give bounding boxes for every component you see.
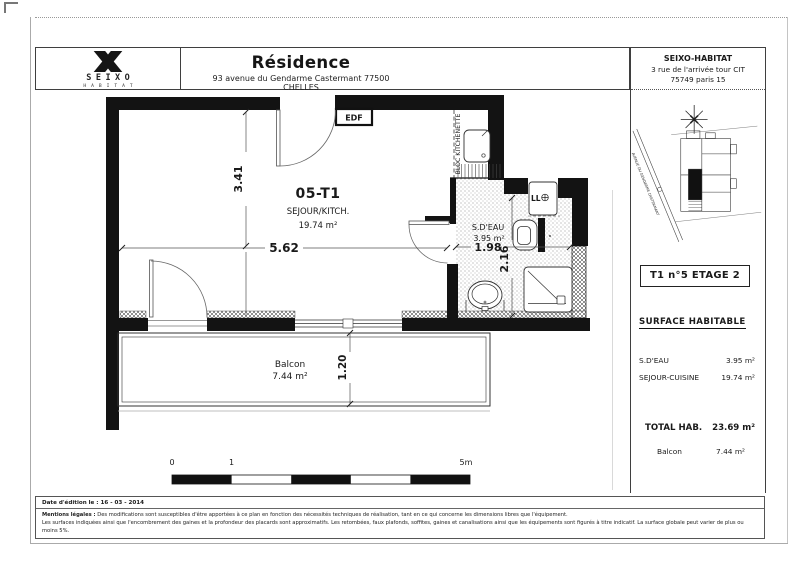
unit-id-box: T1 n°5 ETAGE 2 xyxy=(640,265,750,287)
surface-habitable-title: SURFACE HABITABLE xyxy=(639,317,746,329)
edf-meter: EDF xyxy=(336,109,372,125)
party-wall-hatched xyxy=(572,246,586,318)
dim-height-label: 3.41 xyxy=(232,165,245,192)
floor-plan: BLOC KITCHENETTE EDF LL xyxy=(100,90,600,435)
balcony-label: Balcon xyxy=(657,447,682,456)
site-plan: AVENUE DU GENDARME CASTERMANT xyxy=(631,93,765,253)
company-block: SEIXO-HABITAT 3 rue de l'arrivée tour CI… xyxy=(631,48,765,90)
sheet-bottom-border xyxy=(30,543,788,544)
scale-0: 0 xyxy=(169,458,174,467)
sheet-corner-mark xyxy=(4,2,18,13)
company-address-2: 75749 paris 15 xyxy=(631,75,765,84)
balcony-door xyxy=(150,260,208,317)
sheet-left-border xyxy=(30,17,31,544)
surface-row-label: S.D'EAU xyxy=(639,356,669,365)
legal-line-1: Des modifications sont susceptibles d'êt… xyxy=(97,512,567,518)
surface-row-value: 19.74 m² xyxy=(721,373,755,382)
bathroom-area: 3.95 m² xyxy=(473,234,504,243)
balcony-row: Balcon 7.44 m² xyxy=(657,447,745,456)
sheet-top-border xyxy=(35,17,787,18)
street-line xyxy=(633,129,683,242)
residence-title: Résidence xyxy=(196,53,406,72)
surface-row-label: SEJOUR-CUISINE xyxy=(639,373,699,382)
surface-row-sejour: SEJOUR-CUISINE 19.74 m² xyxy=(639,373,755,382)
seixo-x-icon xyxy=(91,51,125,72)
footer-block: Date d'édition le : 16 - 03 - 2014 Menti… xyxy=(35,496,765,539)
surface-row-value: 3.95 m² xyxy=(726,356,755,365)
main-room-area: 19.74 m² xyxy=(299,221,338,231)
unit-label: 05-T1 xyxy=(295,186,340,202)
balcony-plan-label: Balcon xyxy=(275,360,305,370)
compass-rose-icon xyxy=(681,105,708,134)
logo-brand-text: SEIXO xyxy=(86,73,134,83)
total-label: TOTAL HAB. xyxy=(645,423,702,433)
washing-machine-icon: LL xyxy=(528,182,560,216)
scale-1: 1 xyxy=(229,458,234,467)
dim-width-label: 5.62 xyxy=(269,241,299,255)
bathroom-door xyxy=(409,221,449,263)
dim-balcony-label: 1.20 xyxy=(337,355,349,381)
surface-row-sdeau: S.D'EAU 3.95 m² xyxy=(639,356,755,365)
legal-title: Mentions légales : xyxy=(42,512,96,518)
balcony-plan-area: 7.44 m² xyxy=(272,372,308,382)
sheet-fold-line xyxy=(612,190,613,490)
legal-line-2: Les surfaces indiquées ainsi que l'encom… xyxy=(42,519,758,535)
sheet-right-border xyxy=(787,17,788,543)
info-panel: SEIXO-HABITAT 3 rue de l'arrivée tour CI… xyxy=(630,47,766,493)
title-block-header: SEIXO HABITAT Résidence 93 avenue du Gen… xyxy=(35,47,630,90)
main-room-label: SEJOUR/KITCH. xyxy=(287,207,350,217)
balcony-value: 7.44 m² xyxy=(716,447,745,456)
edf-label: EDF xyxy=(345,114,363,123)
logo-word-text: HABITAT xyxy=(83,84,137,89)
total-hab-row: TOTAL HAB. 23.69 m² xyxy=(645,423,755,433)
company-name: SEIXO-HABITAT xyxy=(631,54,765,63)
washer-label: LL xyxy=(531,194,541,203)
entrance-door xyxy=(277,110,336,166)
scale-bar: 0 1 5m xyxy=(165,455,475,487)
wall-insulation-hatch xyxy=(120,311,586,318)
dim-bath-height-label: 2.16 xyxy=(498,245,511,272)
legal-mentions: Mentions légales : Des modifications son… xyxy=(36,509,764,538)
company-address-1: 3 rue de l'arrivée tour CIT xyxy=(631,65,765,74)
bathroom-label: S.D'EAU xyxy=(472,223,505,232)
highlighted-unit xyxy=(688,169,701,200)
kitchen-sink-icon xyxy=(464,130,490,162)
seixo-logo: SEIXO HABITAT xyxy=(36,48,181,89)
total-value: 23.69 m² xyxy=(712,423,755,433)
site-building-footprint xyxy=(671,126,761,222)
scale-5m: 5m xyxy=(460,458,473,467)
edition-date: Date d'édition le : 16 - 03 - 2014 xyxy=(36,497,764,509)
plan-sheet: SEIXO HABITAT Résidence 93 avenue du Gen… xyxy=(0,0,799,565)
residence-title-cell: Résidence 93 avenue du Gendarme Casterma… xyxy=(181,48,629,89)
kitchenette-label: BLOC KITCHENETTE xyxy=(455,114,462,175)
shower-icon xyxy=(524,267,572,312)
